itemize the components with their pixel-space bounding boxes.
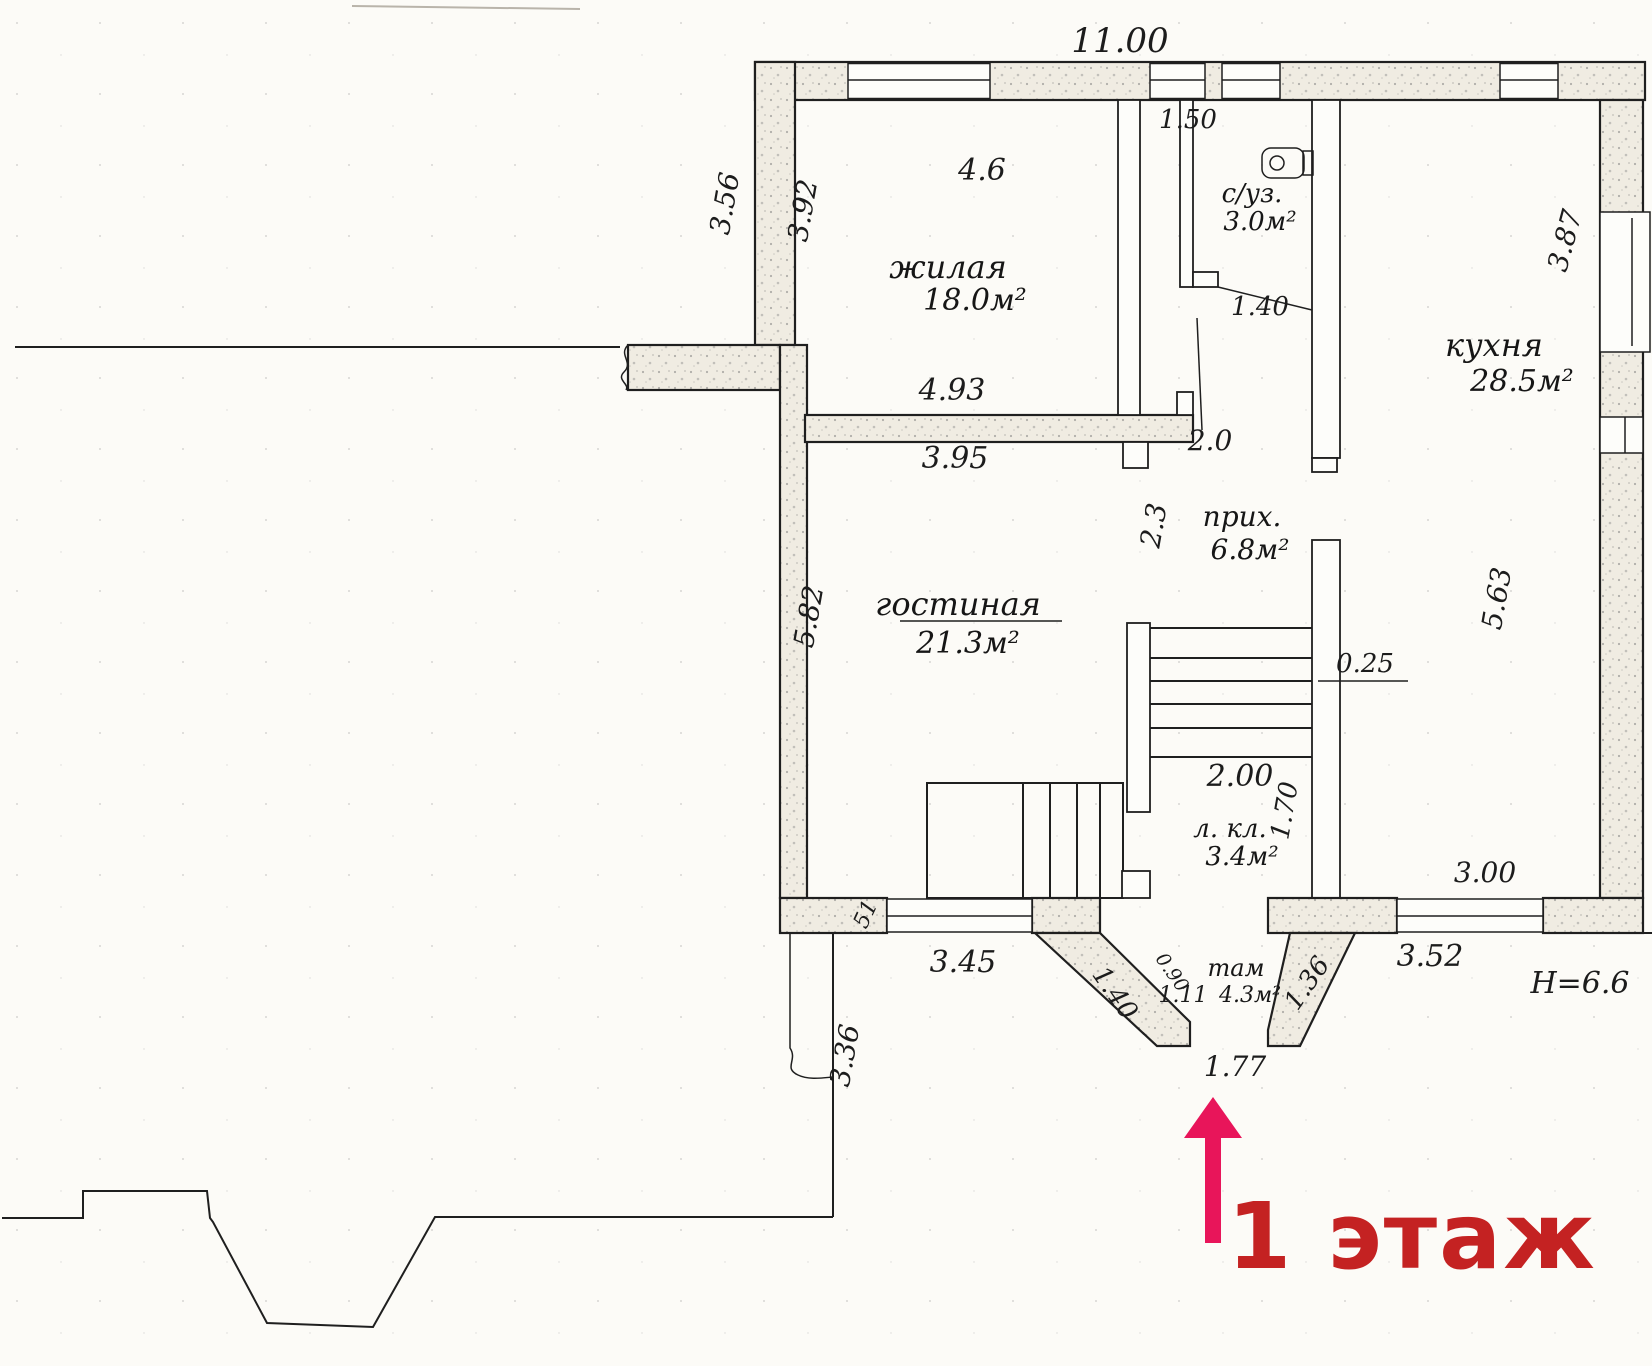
dim-zhilaya-bottom-b: 3.95 [922, 441, 989, 476]
room-prih-name: прих. [1203, 500, 1282, 533]
dim-bottom-window: 3.52 [1397, 939, 1464, 974]
room-prih-area: 6.8м² [1211, 533, 1290, 566]
window-kuhnya-bottom [1397, 899, 1543, 932]
room-kuhnya-area: 28.5м² [1469, 364, 1574, 399]
dim-gostinaya-window: 3.45 [930, 945, 997, 980]
room-tambur-area: 4.3м² [1218, 983, 1281, 1008]
paper-background [0, 0, 1652, 1366]
dim-top-total: 11.00 [1071, 21, 1168, 61]
floor-plan-page: 11.00 4.6 3.56 3.92 1.50 1.40 4.93 3.95 … [0, 0, 1652, 1366]
dim-suz-door: 1.40 [1231, 292, 1289, 322]
dim-kuhnya-window: 3.00 [1454, 856, 1516, 889]
window-right-small [1600, 417, 1643, 453]
window-top-3 [1222, 64, 1280, 99]
room-gostinaya-area: 21.3м² [915, 626, 1020, 661]
room-kuhnya-name: кухня [1445, 326, 1543, 364]
room-suz-area: 3.0м² [1223, 207, 1296, 237]
room-tambur-name: там [1208, 954, 1265, 982]
window-gostinaya [887, 899, 1032, 932]
window-top-4 [1500, 64, 1558, 99]
room-zhilaya-name: жилая [889, 248, 1007, 286]
dim-zhilaya-bottom-a: 4.93 [918, 373, 986, 408]
room-lkl-area: 3.4м² [1205, 842, 1278, 872]
room-suz-name: с/уз. [1222, 179, 1283, 209]
window-top-2 [1150, 64, 1205, 99]
dim-wall-thickness: 0.25 [1336, 649, 1394, 679]
dim-entrance-width: 1.77 [1204, 1050, 1267, 1083]
dim-stairs-width: 2.00 [1206, 759, 1274, 794]
room-lkl-name: л. кл. [1193, 814, 1266, 844]
window-bay-right [1600, 212, 1650, 352]
dim-zhilaya-width: 4.6 [957, 153, 1006, 188]
dim-tambur-width: 1.11 [1159, 983, 1208, 1008]
floor-label: 1 этаж [1227, 1183, 1597, 1290]
room-zhilaya-area: 18.0м² [923, 283, 1027, 318]
room-gostinaya-name: гостиная [875, 585, 1041, 623]
dim-suz-width: 1.50 [1159, 105, 1217, 135]
stair-rail [1127, 623, 1150, 812]
floor-plan-canvas: 11.00 4.6 3.56 3.92 1.50 1.40 4.93 3.95 … [0, 0, 1652, 1366]
stair-newel-jamb [1122, 871, 1150, 898]
dim-prih-opening: 2.0 [1187, 424, 1233, 457]
window-top-1 [848, 64, 990, 99]
dim-building-height: H=6.6 [1529, 966, 1629, 1001]
